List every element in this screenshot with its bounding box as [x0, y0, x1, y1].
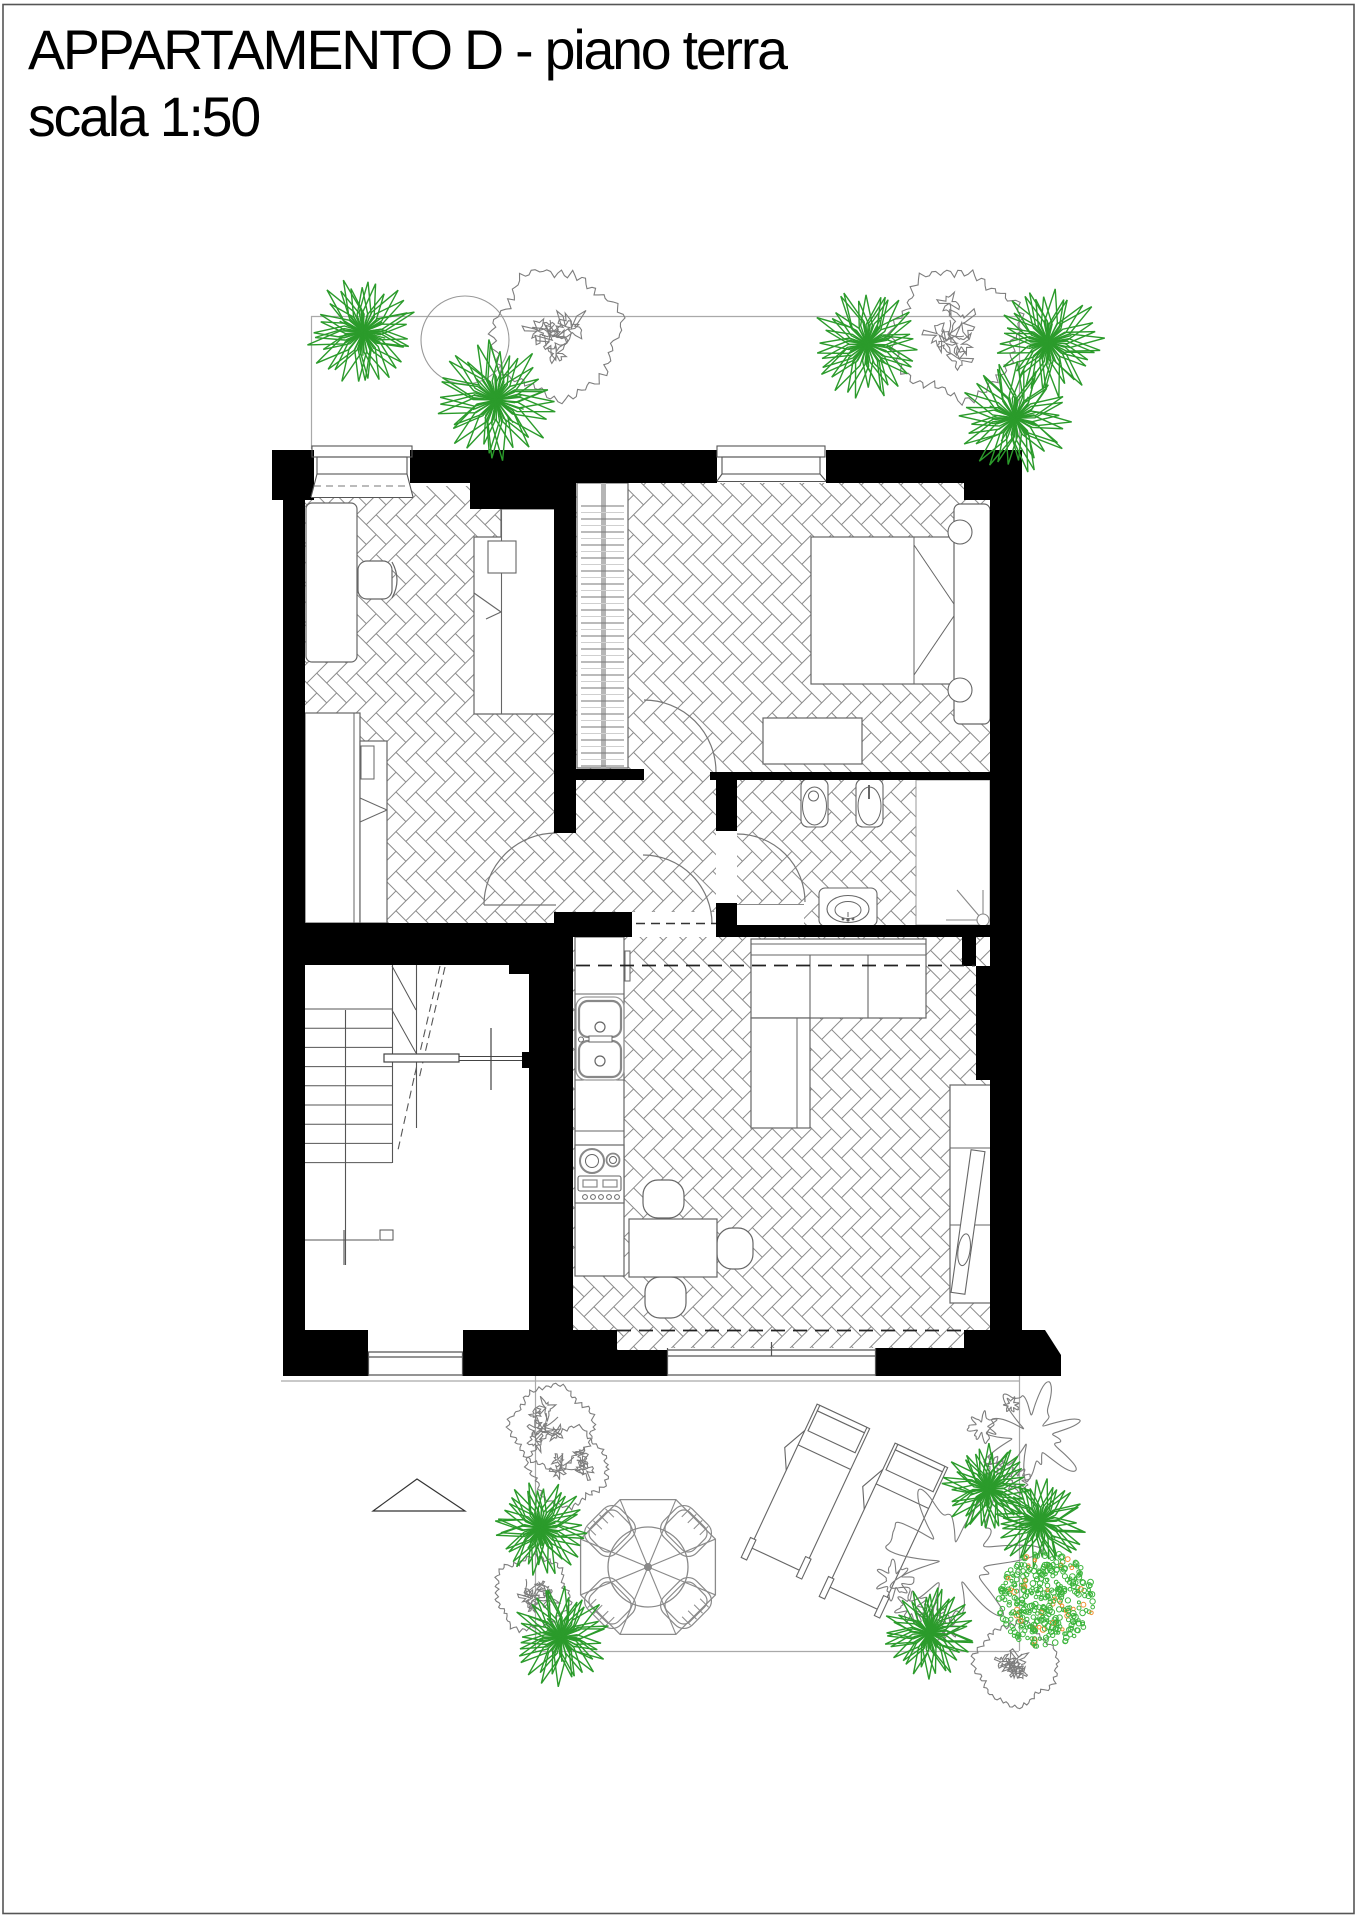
svg-text:APPARTAMENTO D - piano terra: APPARTAMENTO D - piano terra: [28, 19, 788, 81]
svg-text:scala 1:50: scala 1:50: [28, 86, 259, 148]
